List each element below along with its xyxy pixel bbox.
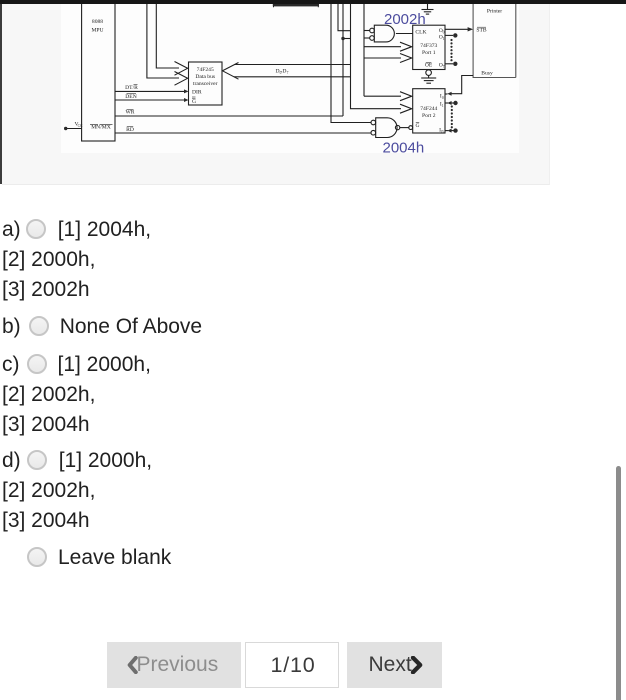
svg-text:2002h: 2002h xyxy=(384,11,426,28)
svg-text:8088: 8088 xyxy=(92,19,103,25)
svg-text:DEN: DEN xyxy=(125,94,137,100)
svg-text:0: 0 xyxy=(442,96,444,100)
svg-text:Printer: Printer xyxy=(487,9,502,15)
svg-text:74F245: 74F245 xyxy=(197,67,214,73)
svg-text:G: G xyxy=(415,123,419,129)
svg-text:MPU: MPU xyxy=(91,28,103,34)
svg-text:CLK: CLK xyxy=(415,30,426,36)
svg-text:74F244: 74F244 xyxy=(420,106,437,112)
svg-text:STB: STB xyxy=(476,28,487,34)
svg-text:G: G xyxy=(192,99,196,105)
svg-text:Port 1: Port 1 xyxy=(422,50,436,56)
svg-text:CC: CC xyxy=(78,124,83,128)
svg-text:DIR: DIR xyxy=(192,90,202,96)
svg-text:OE: OE xyxy=(425,63,433,69)
svg-text:DT/R: DT/R xyxy=(125,85,138,91)
svg-text:1: 1 xyxy=(442,104,444,108)
svg-text:transceiver: transceiver xyxy=(193,81,218,87)
svg-text:MN/MX: MN/MX xyxy=(91,125,111,131)
svg-text:74F373: 74F373 xyxy=(420,43,437,49)
svg-text:Data bus: Data bus xyxy=(195,74,215,80)
svg-text:1: 1 xyxy=(443,37,445,41)
svg-text:RD: RD xyxy=(126,127,134,133)
svg-text:WR: WR xyxy=(125,110,134,116)
svg-text:2004h: 2004h xyxy=(383,140,425,154)
svg-text:7: 7 xyxy=(287,71,289,75)
svg-text:Busy: Busy xyxy=(481,71,493,77)
svg-text:Port 2: Port 2 xyxy=(422,113,436,119)
svg-text:7: 7 xyxy=(443,65,445,69)
svg-text:15: 15 xyxy=(440,130,444,134)
svg-text:0: 0 xyxy=(443,30,445,34)
svg-text:-D: -D xyxy=(281,69,287,75)
